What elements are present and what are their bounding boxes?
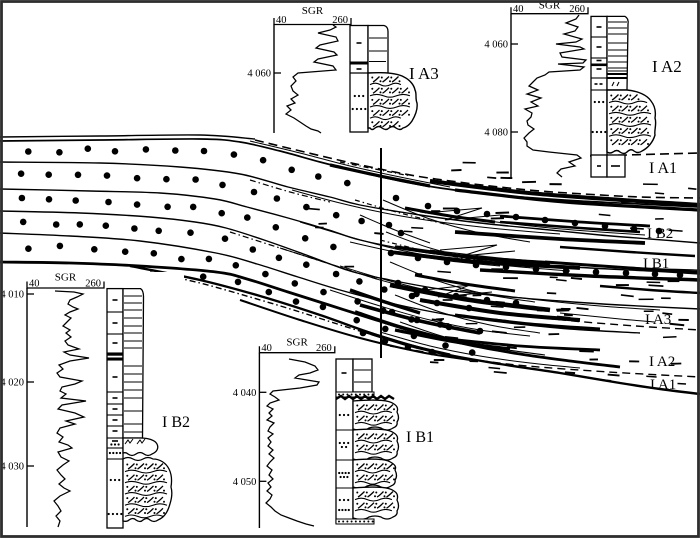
svg-text:40: 40 — [513, 4, 524, 15]
svg-text:260: 260 — [569, 4, 585, 15]
svg-text:SGR: SGR — [302, 5, 324, 17]
svg-text:I A3: I A3 — [409, 64, 439, 83]
svg-text:4 050: 4 050 — [233, 477, 257, 488]
svg-text:260: 260 — [332, 15, 348, 26]
svg-text:I A2: I A2 — [649, 354, 675, 370]
svg-text:4 060: 4 060 — [247, 69, 271, 80]
svg-text:SGR: SGR — [286, 337, 308, 349]
svg-text:4 060: 4 060 — [484, 40, 508, 51]
svg-text:SGR: SGR — [55, 272, 77, 284]
svg-text:I B2: I B2 — [647, 226, 673, 242]
svg-text:40: 40 — [29, 279, 40, 290]
svg-text:I A2: I A2 — [652, 57, 682, 76]
svg-text:260: 260 — [316, 343, 332, 354]
svg-text:4 030: 4 030 — [0, 462, 24, 473]
svg-text:I B2: I B2 — [162, 414, 190, 431]
svg-text:I A1: I A1 — [649, 160, 677, 177]
svg-text:260: 260 — [85, 279, 101, 290]
svg-text:4 040: 4 040 — [233, 388, 257, 399]
svg-text:I A1: I A1 — [650, 377, 676, 393]
svg-text:40: 40 — [276, 15, 287, 26]
svg-text:I B1: I B1 — [643, 256, 669, 272]
svg-text:I A3: I A3 — [645, 312, 671, 328]
svg-text:4 010: 4 010 — [0, 290, 24, 301]
svg-text:I B1: I B1 — [406, 429, 434, 446]
svg-text:4 020: 4 020 — [0, 378, 24, 389]
svg-text:40: 40 — [261, 343, 272, 354]
svg-text:4 080: 4 080 — [484, 128, 508, 139]
